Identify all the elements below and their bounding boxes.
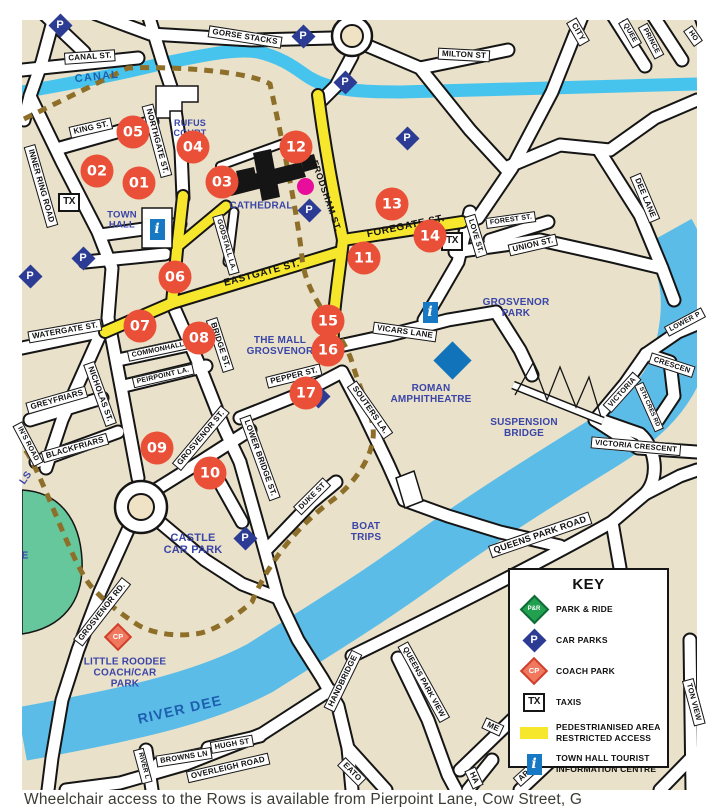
street-label-peirpoint-la-: PEIRPOINT LA. <box>132 364 194 389</box>
key-item-label: PARK & RIDE <box>556 604 613 615</box>
map-marker-10[interactable]: 10 <box>194 457 227 490</box>
info-icon: i <box>417 299 443 325</box>
map-marker-08[interactable]: 08 <box>183 322 216 355</box>
park-ride-icon: P&R <box>516 596 552 622</box>
car-park-icon: P <box>17 263 43 289</box>
car-park-icon: P <box>394 125 420 151</box>
street-label-prince: PRINCE <box>638 23 664 60</box>
car-park-icon: P <box>296 197 322 223</box>
place-label: LITTLE ROODEE COACH/CAR PARK <box>84 657 167 690</box>
street-label-forest-st-: FOREST ST. <box>485 211 536 229</box>
street-label-love-st-: LOVE ST. <box>464 214 488 258</box>
coach-park-icon: CP <box>516 658 552 684</box>
street-label-nicholas-st-: NICHOLAS ST. <box>83 361 117 427</box>
key-item: TXTAXIS <box>516 689 661 715</box>
pink-dot-icon <box>292 173 318 199</box>
taxi-icon: TX <box>516 689 552 715</box>
street-label-ha: HA <box>464 766 483 789</box>
street-label-victoria: VICTORIA <box>603 371 642 412</box>
place-label: E <box>22 551 29 562</box>
map-marker-05[interactable]: 05 <box>117 116 150 149</box>
map-marker-12[interactable]: 12 <box>280 131 313 164</box>
map-marker-11[interactable]: 11 <box>348 242 381 275</box>
map-marker-09[interactable]: 09 <box>141 432 174 465</box>
map-key: KEY P&RPARK & RIDEPCAR PARKSCPCOACH PARK… <box>508 568 669 768</box>
coach-park-icon: CP <box>105 624 131 650</box>
map-marker-03[interactable]: 03 <box>206 166 239 199</box>
street-label-in-s-road: IN'S ROAD <box>12 421 43 467</box>
map-marker-14[interactable]: 14 <box>414 220 447 253</box>
key-item-label: PEDESTRIANISED AREA RESTRICTED ACCESS <box>556 722 661 743</box>
city-map-page: GORSE STACKSCANAL ST.MILTON STCITYQUEEPR… <box>0 0 723 807</box>
street-label-ton-view: TON VIEW <box>682 678 705 726</box>
street-label-inner-ring-road: INNER RING ROAD <box>24 144 59 228</box>
taxi-icon: TX <box>56 189 82 215</box>
key-title: KEY <box>516 576 661 593</box>
street-label-quee: QUEE <box>618 18 642 48</box>
street-label-hugh-st: HUGH ST <box>210 735 254 754</box>
street-label-sth-cres-rd: STH CRES RD <box>634 382 664 433</box>
key-item-label: COACH PARK <box>556 666 615 677</box>
map-marker-01[interactable]: 01 <box>123 167 156 200</box>
place-label: CASTLE CAR PARK <box>164 532 223 556</box>
street-label-blackfriars: BLACKFRIARS <box>41 433 110 463</box>
place-label: TOWN HALL <box>107 211 137 232</box>
place-label: SUSPENSION BRIDGE <box>490 417 558 439</box>
street-label-union-st-: UNION ST. <box>508 234 559 257</box>
place-label: BOAT TRIPS <box>351 521 381 543</box>
map-marker-06[interactable]: 06 <box>159 261 192 294</box>
place-label: LS <box>18 469 35 486</box>
key-item-label: TAXIS <box>556 697 581 708</box>
street-label-canal-st-: CANAL ST. <box>64 49 116 65</box>
street-label-river-l: RIVER L <box>133 748 152 785</box>
car-park-icon: P <box>290 23 316 49</box>
street-label-victoria-crescent: VICTORIA CRESCENT <box>591 436 682 455</box>
map-marker-04[interactable]: 04 <box>177 131 210 164</box>
map-marker-16[interactable]: 16 <box>312 334 345 367</box>
street-label-souters-la-: SOUTERS LA. <box>347 380 394 439</box>
map-marker-07[interactable]: 07 <box>124 310 157 343</box>
street-label-handbridge: HANDBRIDGE <box>324 650 363 713</box>
car-park-icon: P <box>70 245 96 271</box>
street-label-dee-lane: DEE LANE <box>630 173 661 224</box>
street-label-lower-p: LOWER P <box>664 307 706 336</box>
key-item-label: TOWN HALL TOURIST INFORMATION CENTRE <box>556 753 656 774</box>
street-label-ho: HO <box>683 25 703 47</box>
place-label: RIVER DEE <box>136 693 224 727</box>
key-item: PCAR PARKS <box>516 627 661 653</box>
map-marker-17[interactable]: 17 <box>290 377 323 410</box>
place-label: GROSVENOR PARK <box>483 297 550 319</box>
street-label-milton-st: MILTON ST <box>438 48 491 63</box>
key-item: P&RPARK & RIDE <box>516 596 661 622</box>
bottom-caption: Wheelchair access to the Rows is availab… <box>24 791 723 807</box>
street-label-godstall-la-: GODSTALL LA. <box>212 214 240 276</box>
street-label-me: ME <box>481 717 505 736</box>
street-label-queens-park-road: QUEENS PARK ROAD <box>488 512 592 559</box>
street-label-watergate-st-: WATERGATE ST. <box>27 319 102 344</box>
map-marker-13[interactable]: 13 <box>376 188 409 221</box>
map-marker-02[interactable]: 02 <box>81 155 114 188</box>
key-item-label: CAR PARKS <box>556 635 608 646</box>
street-label-gorse-stacks: GORSE STACKS <box>208 25 283 48</box>
place-label: ROMAN AMPHITHEATRE <box>390 383 471 405</box>
street-label-duke-st: DUKE ST <box>293 477 331 515</box>
street-label-lower-bridge-st-: LOWER BRIDGE ST. <box>239 415 280 502</box>
info-icon: i <box>144 216 170 242</box>
car-park-icon: P <box>47 12 73 38</box>
car-park-icon: P <box>516 627 552 653</box>
pedestrian-icon <box>516 720 552 746</box>
car-park-icon: P <box>232 525 258 551</box>
street-label-greyfriars: GREYFRIARS <box>25 386 88 415</box>
street-label-eato: EATO <box>337 757 367 787</box>
key-items: P&RPARK & RIDEPCAR PARKSCPCOACH PARKTXTA… <box>516 596 661 777</box>
street-label-browns-ln: BROWNS LN <box>155 747 212 767</box>
key-item: iTOWN HALL TOURIST INFORMATION CENTRE <box>516 751 661 777</box>
key-item: CPCOACH PARK <box>516 658 661 684</box>
street-label-city: CITY <box>566 17 590 46</box>
place-label: THE MALL GROSVENOR <box>247 335 314 357</box>
key-item: PEDESTRIANISED AREA RESTRICTED ACCESS <box>516 720 661 746</box>
street-label-king-st-: KING ST. <box>69 117 114 138</box>
blue-diamond-icon <box>439 347 465 373</box>
place-label: CANAL <box>74 69 120 86</box>
street-label-queens-park-view: QUEENS PARK VIEW <box>398 641 450 723</box>
place-label: CATHEDRAL <box>229 201 292 212</box>
car-park-icon: P <box>332 69 358 95</box>
info-icon: i <box>516 751 552 777</box>
street-label-crescen: CRESCEN <box>648 352 695 377</box>
